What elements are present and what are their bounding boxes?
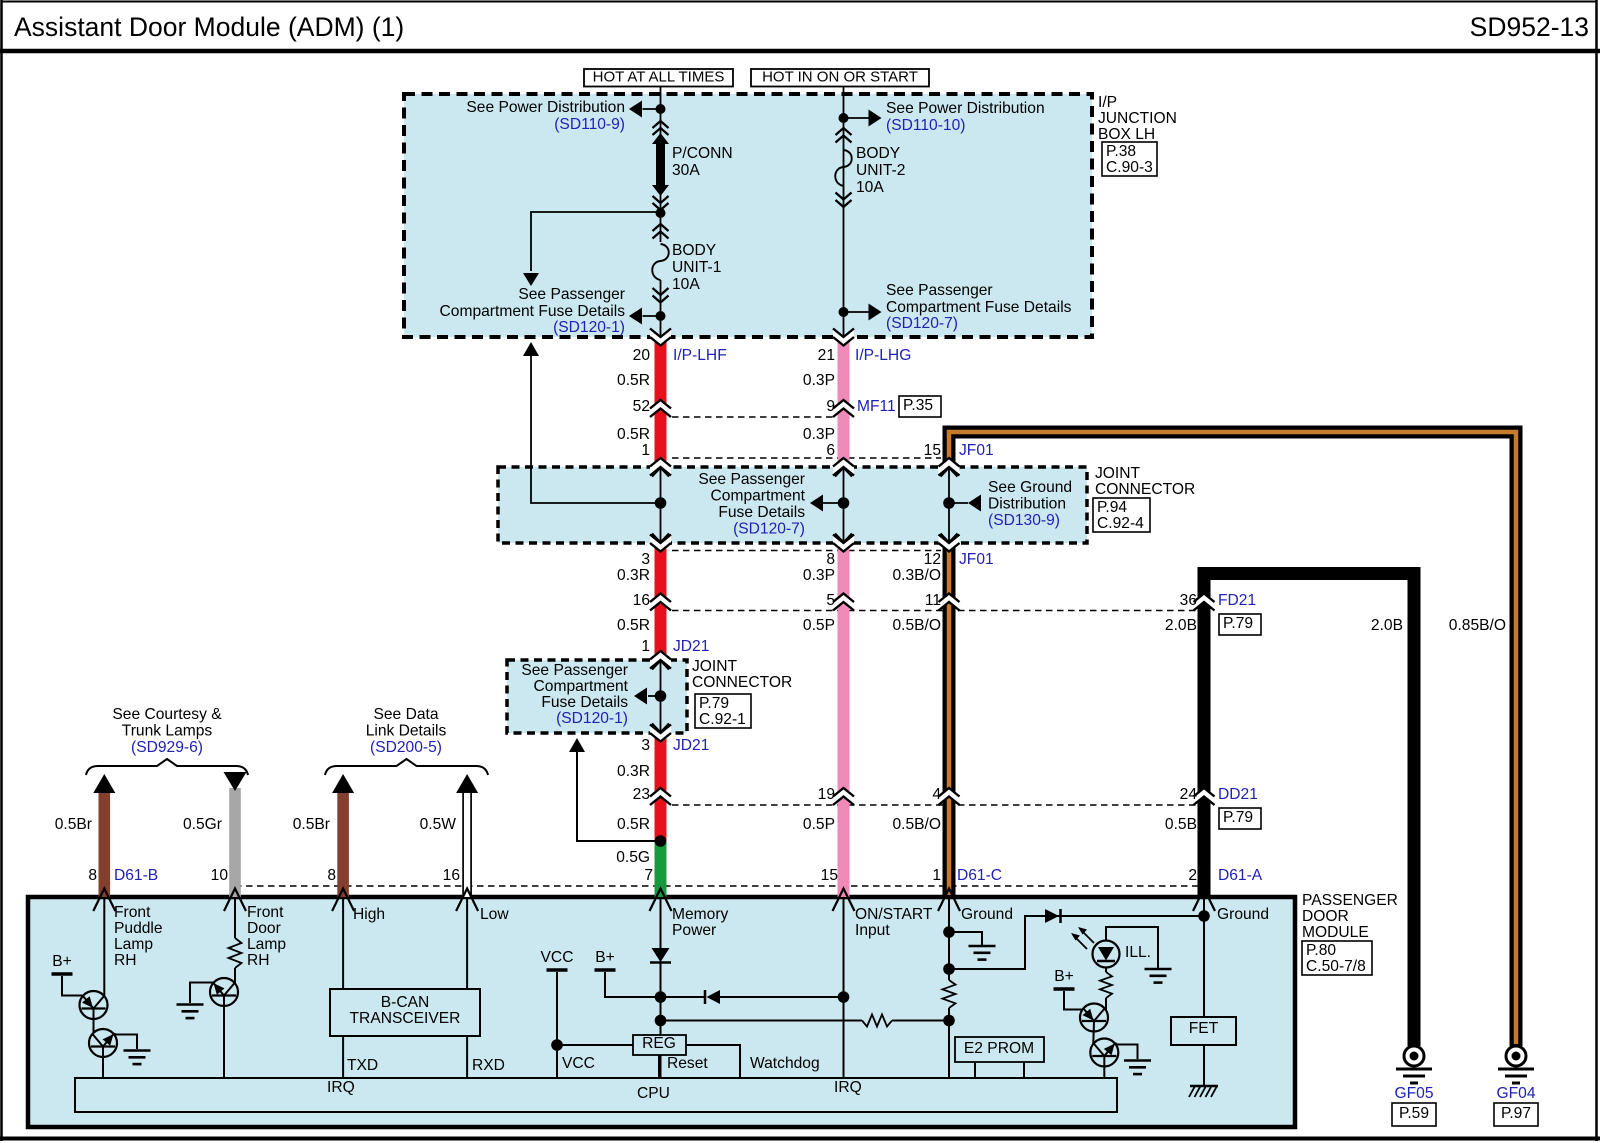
svg-text:0.5R: 0.5R [617, 372, 650, 389]
svg-text:Assistant Door Module (ADM) (1: Assistant Door Module (ADM) (1) [14, 12, 404, 42]
svg-text:2.0B: 2.0B [1165, 617, 1197, 634]
svg-text:BODY: BODY [672, 242, 717, 259]
svg-text:GF05: GF05 [1395, 1085, 1434, 1102]
svg-text:Ground: Ground [961, 906, 1013, 923]
svg-text:1: 1 [641, 442, 650, 459]
svg-text:10A: 10A [856, 179, 884, 196]
svg-text:See Passenger: See Passenger [886, 282, 993, 299]
svg-text:PASSENGER: PASSENGER [1302, 892, 1398, 909]
svg-text:Distribution: Distribution [988, 496, 1066, 513]
svg-text:Memory: Memory [672, 906, 729, 923]
svg-text:Lamp: Lamp [114, 936, 153, 953]
svg-text:(SD120-1): (SD120-1) [553, 319, 625, 336]
svg-text:CONNECTOR: CONNECTOR [692, 674, 792, 691]
svg-text:Watchdog: Watchdog [750, 1055, 820, 1072]
svg-text:BODY: BODY [856, 145, 901, 162]
svg-text:P.79: P.79 [699, 695, 729, 712]
svg-text:Door: Door [247, 920, 281, 937]
svg-text:P.94: P.94 [1097, 499, 1127, 516]
svg-text:D61-A: D61-A [1218, 867, 1263, 884]
svg-text:SD952-13: SD952-13 [1470, 12, 1589, 42]
svg-text:0.5P: 0.5P [803, 816, 835, 833]
svg-text:Front: Front [114, 904, 151, 921]
svg-text:VCC: VCC [541, 949, 574, 966]
svg-text:Reset: Reset [667, 1055, 708, 1072]
svg-text:I/P-LHG: I/P-LHG [855, 347, 911, 364]
svg-text:0.5B/O: 0.5B/O [892, 816, 941, 833]
svg-text:Lamp: Lamp [247, 936, 286, 953]
svg-text:15: 15 [821, 867, 839, 884]
svg-text:6: 6 [826, 442, 835, 459]
svg-text:23: 23 [633, 786, 650, 803]
svg-text:RH: RH [114, 952, 137, 969]
svg-text:8: 8 [327, 867, 336, 884]
svg-text:Fuse Details: Fuse Details [718, 504, 805, 521]
svg-text:19: 19 [818, 786, 835, 803]
svg-text:(SD110-10): (SD110-10) [886, 117, 965, 134]
svg-text:GF04: GF04 [1497, 1085, 1536, 1102]
svg-text:P/CONN: P/CONN [672, 145, 733, 162]
svg-text:DD21: DD21 [1218, 786, 1258, 803]
svg-text:I/P: I/P [1098, 94, 1117, 111]
svg-text:Power: Power [672, 922, 716, 939]
svg-text:10: 10 [211, 867, 229, 884]
svg-text:21: 21 [818, 347, 835, 364]
svg-text:7: 7 [644, 867, 653, 884]
svg-text:(SD120-7): (SD120-7) [886, 315, 958, 332]
svg-text:Compartment Fuse Details: Compartment Fuse Details [886, 299, 1072, 316]
svg-text:10A: 10A [672, 276, 700, 293]
svg-text:Ground: Ground [1217, 906, 1269, 923]
svg-text:C.92-1: C.92-1 [699, 711, 746, 728]
svg-text:P.38: P.38 [1106, 143, 1136, 160]
svg-text:0.5Br: 0.5Br [293, 816, 330, 833]
svg-text:RXD: RXD [472, 1057, 505, 1074]
svg-text:Front: Front [247, 904, 284, 921]
svg-text:36: 36 [1180, 592, 1197, 609]
svg-text:P.80: P.80 [1306, 942, 1336, 959]
svg-text:3: 3 [641, 737, 650, 754]
svg-text:C.92-4: C.92-4 [1097, 515, 1144, 532]
svg-text:(SD110-9): (SD110-9) [554, 116, 625, 133]
svg-text:MF11: MF11 [857, 398, 896, 415]
svg-text:0.5Br: 0.5Br [55, 816, 92, 833]
svg-text:C.50-7/8: C.50-7/8 [1306, 958, 1366, 975]
svg-text:Input: Input [855, 922, 890, 939]
svg-text:JF01: JF01 [959, 551, 994, 568]
svg-text:0.5P: 0.5P [803, 617, 835, 634]
svg-text:0.3B/O: 0.3B/O [892, 567, 941, 584]
svg-text:UNIT-2: UNIT-2 [856, 162, 905, 179]
svg-text:D61-C: D61-C [957, 867, 1002, 884]
svg-text:Compartment Fuse Details: Compartment Fuse Details [440, 303, 626, 320]
svg-text:0.5B: 0.5B [1165, 816, 1197, 833]
svg-text:0.3P: 0.3P [803, 567, 835, 584]
svg-text:15: 15 [924, 442, 942, 459]
svg-text:Compartment: Compartment [711, 488, 806, 505]
svg-text:P.35: P.35 [903, 397, 933, 414]
svg-text:(SD120-1): (SD120-1) [556, 710, 628, 727]
svg-text:12: 12 [924, 551, 941, 568]
svg-text:JOINT: JOINT [692, 658, 738, 675]
svg-text:Puddle: Puddle [114, 920, 163, 937]
svg-text:CONNECTOR: CONNECTOR [1095, 481, 1195, 498]
svg-text:IRQ: IRQ [327, 1079, 355, 1096]
svg-text:ILL.: ILL. [1125, 944, 1151, 961]
svg-text:See Power Distribution: See Power Distribution [466, 99, 625, 116]
svg-text:VCC: VCC [562, 1055, 595, 1072]
svg-text:RH: RH [247, 952, 270, 969]
svg-text:0.5R: 0.5R [617, 816, 650, 833]
svg-text:4: 4 [932, 786, 941, 803]
svg-text:P.79: P.79 [1223, 615, 1253, 632]
svg-text:2: 2 [1188, 867, 1197, 884]
svg-text:C.90-3: C.90-3 [1106, 159, 1153, 176]
svg-text:JD21: JD21 [673, 737, 709, 754]
svg-text:See Data: See Data [373, 706, 438, 723]
svg-text:See Power Distribution: See Power Distribution [886, 100, 1045, 117]
svg-text:JF01: JF01 [959, 442, 994, 459]
svg-text:9: 9 [826, 398, 835, 415]
svg-text:P.79: P.79 [1223, 809, 1253, 826]
svg-text:I/P-LHF: I/P-LHF [673, 347, 727, 364]
svg-text:0.3P: 0.3P [803, 372, 835, 389]
svg-text:See Ground: See Ground [988, 479, 1072, 496]
svg-text:Low: Low [480, 906, 509, 923]
svg-text:FD21: FD21 [1218, 592, 1256, 609]
svg-text:TXD: TXD [347, 1057, 378, 1074]
svg-text:30A: 30A [672, 162, 700, 179]
svg-text:See Passenger: See Passenger [521, 662, 628, 679]
svg-text:0.3R: 0.3R [617, 567, 650, 584]
svg-text:11: 11 [925, 592, 941, 609]
svg-text:0.3P: 0.3P [803, 426, 835, 443]
svg-text:Trunk Lamps: Trunk Lamps [122, 723, 213, 740]
svg-text:0.85B/O: 0.85B/O [1449, 617, 1506, 634]
svg-text:P.97: P.97 [1501, 1105, 1531, 1122]
svg-text:Fuse Details: Fuse Details [541, 694, 628, 711]
svg-text:16: 16 [633, 592, 650, 609]
svg-text:B-CAN: B-CAN [381, 994, 430, 1011]
svg-text:High: High [353, 906, 385, 923]
svg-text:(SD120-7): (SD120-7) [733, 521, 805, 538]
svg-text:Link Details: Link Details [366, 723, 447, 740]
svg-text:B+: B+ [52, 953, 72, 970]
svg-text:ON/START: ON/START [855, 906, 933, 923]
svg-text:16: 16 [443, 867, 460, 884]
svg-text:5: 5 [826, 592, 835, 609]
svg-text:24: 24 [1180, 786, 1198, 803]
svg-text:DOOR: DOOR [1302, 908, 1349, 925]
svg-text:IRQ: IRQ [834, 1079, 862, 1096]
svg-text:P.59: P.59 [1399, 1105, 1429, 1122]
svg-text:Compartment: Compartment [534, 678, 629, 695]
svg-text:(SD929-6): (SD929-6) [131, 739, 203, 756]
svg-text:0.5R: 0.5R [617, 617, 650, 634]
svg-text:JOINT: JOINT [1095, 465, 1141, 482]
svg-text:20: 20 [633, 347, 651, 364]
svg-text:0.5W: 0.5W [420, 816, 457, 833]
svg-text:B+: B+ [1054, 968, 1074, 985]
svg-text:D61-B: D61-B [114, 867, 158, 884]
svg-text:BOX LH: BOX LH [1098, 126, 1155, 143]
svg-text:52: 52 [633, 398, 650, 415]
svg-text:JUNCTION: JUNCTION [1098, 110, 1177, 127]
svg-text:FET: FET [1189, 1020, 1219, 1037]
svg-text:TRANSCEIVER: TRANSCEIVER [350, 1010, 461, 1027]
svg-text:3: 3 [641, 551, 650, 568]
svg-text:0.5Gr: 0.5Gr [183, 816, 222, 833]
svg-text:UNIT-1: UNIT-1 [672, 259, 721, 276]
svg-text:MODULE: MODULE [1302, 924, 1369, 941]
svg-text:8: 8 [88, 867, 97, 884]
svg-text:See Passenger: See Passenger [698, 471, 805, 488]
svg-text:0.5R: 0.5R [617, 426, 650, 443]
svg-text:HOT AT ALL TIMES: HOT AT ALL TIMES [593, 69, 725, 86]
svg-text:HOT IN ON OR START: HOT IN ON OR START [762, 69, 918, 86]
svg-text:0.5G: 0.5G [616, 849, 650, 866]
svg-text:0.3R: 0.3R [617, 763, 650, 780]
svg-text:2.0B: 2.0B [1371, 617, 1403, 634]
svg-text:(SD130-9): (SD130-9) [988, 512, 1060, 529]
svg-text:JD21: JD21 [673, 638, 709, 655]
svg-text:E2 PROM: E2 PROM [964, 1040, 1034, 1057]
svg-text:8: 8 [826, 551, 835, 568]
svg-text:CPU: CPU [637, 1085, 670, 1102]
svg-text:See Courtesy &: See Courtesy & [112, 706, 222, 723]
svg-text:(SD200-5): (SD200-5) [370, 739, 442, 756]
svg-text:1: 1 [641, 638, 650, 655]
svg-text:B+: B+ [595, 949, 615, 966]
svg-text:REG: REG [642, 1035, 676, 1052]
svg-text:See Passenger: See Passenger [518, 286, 625, 303]
svg-text:0.5B/O: 0.5B/O [892, 617, 941, 634]
svg-text:1: 1 [932, 867, 941, 884]
